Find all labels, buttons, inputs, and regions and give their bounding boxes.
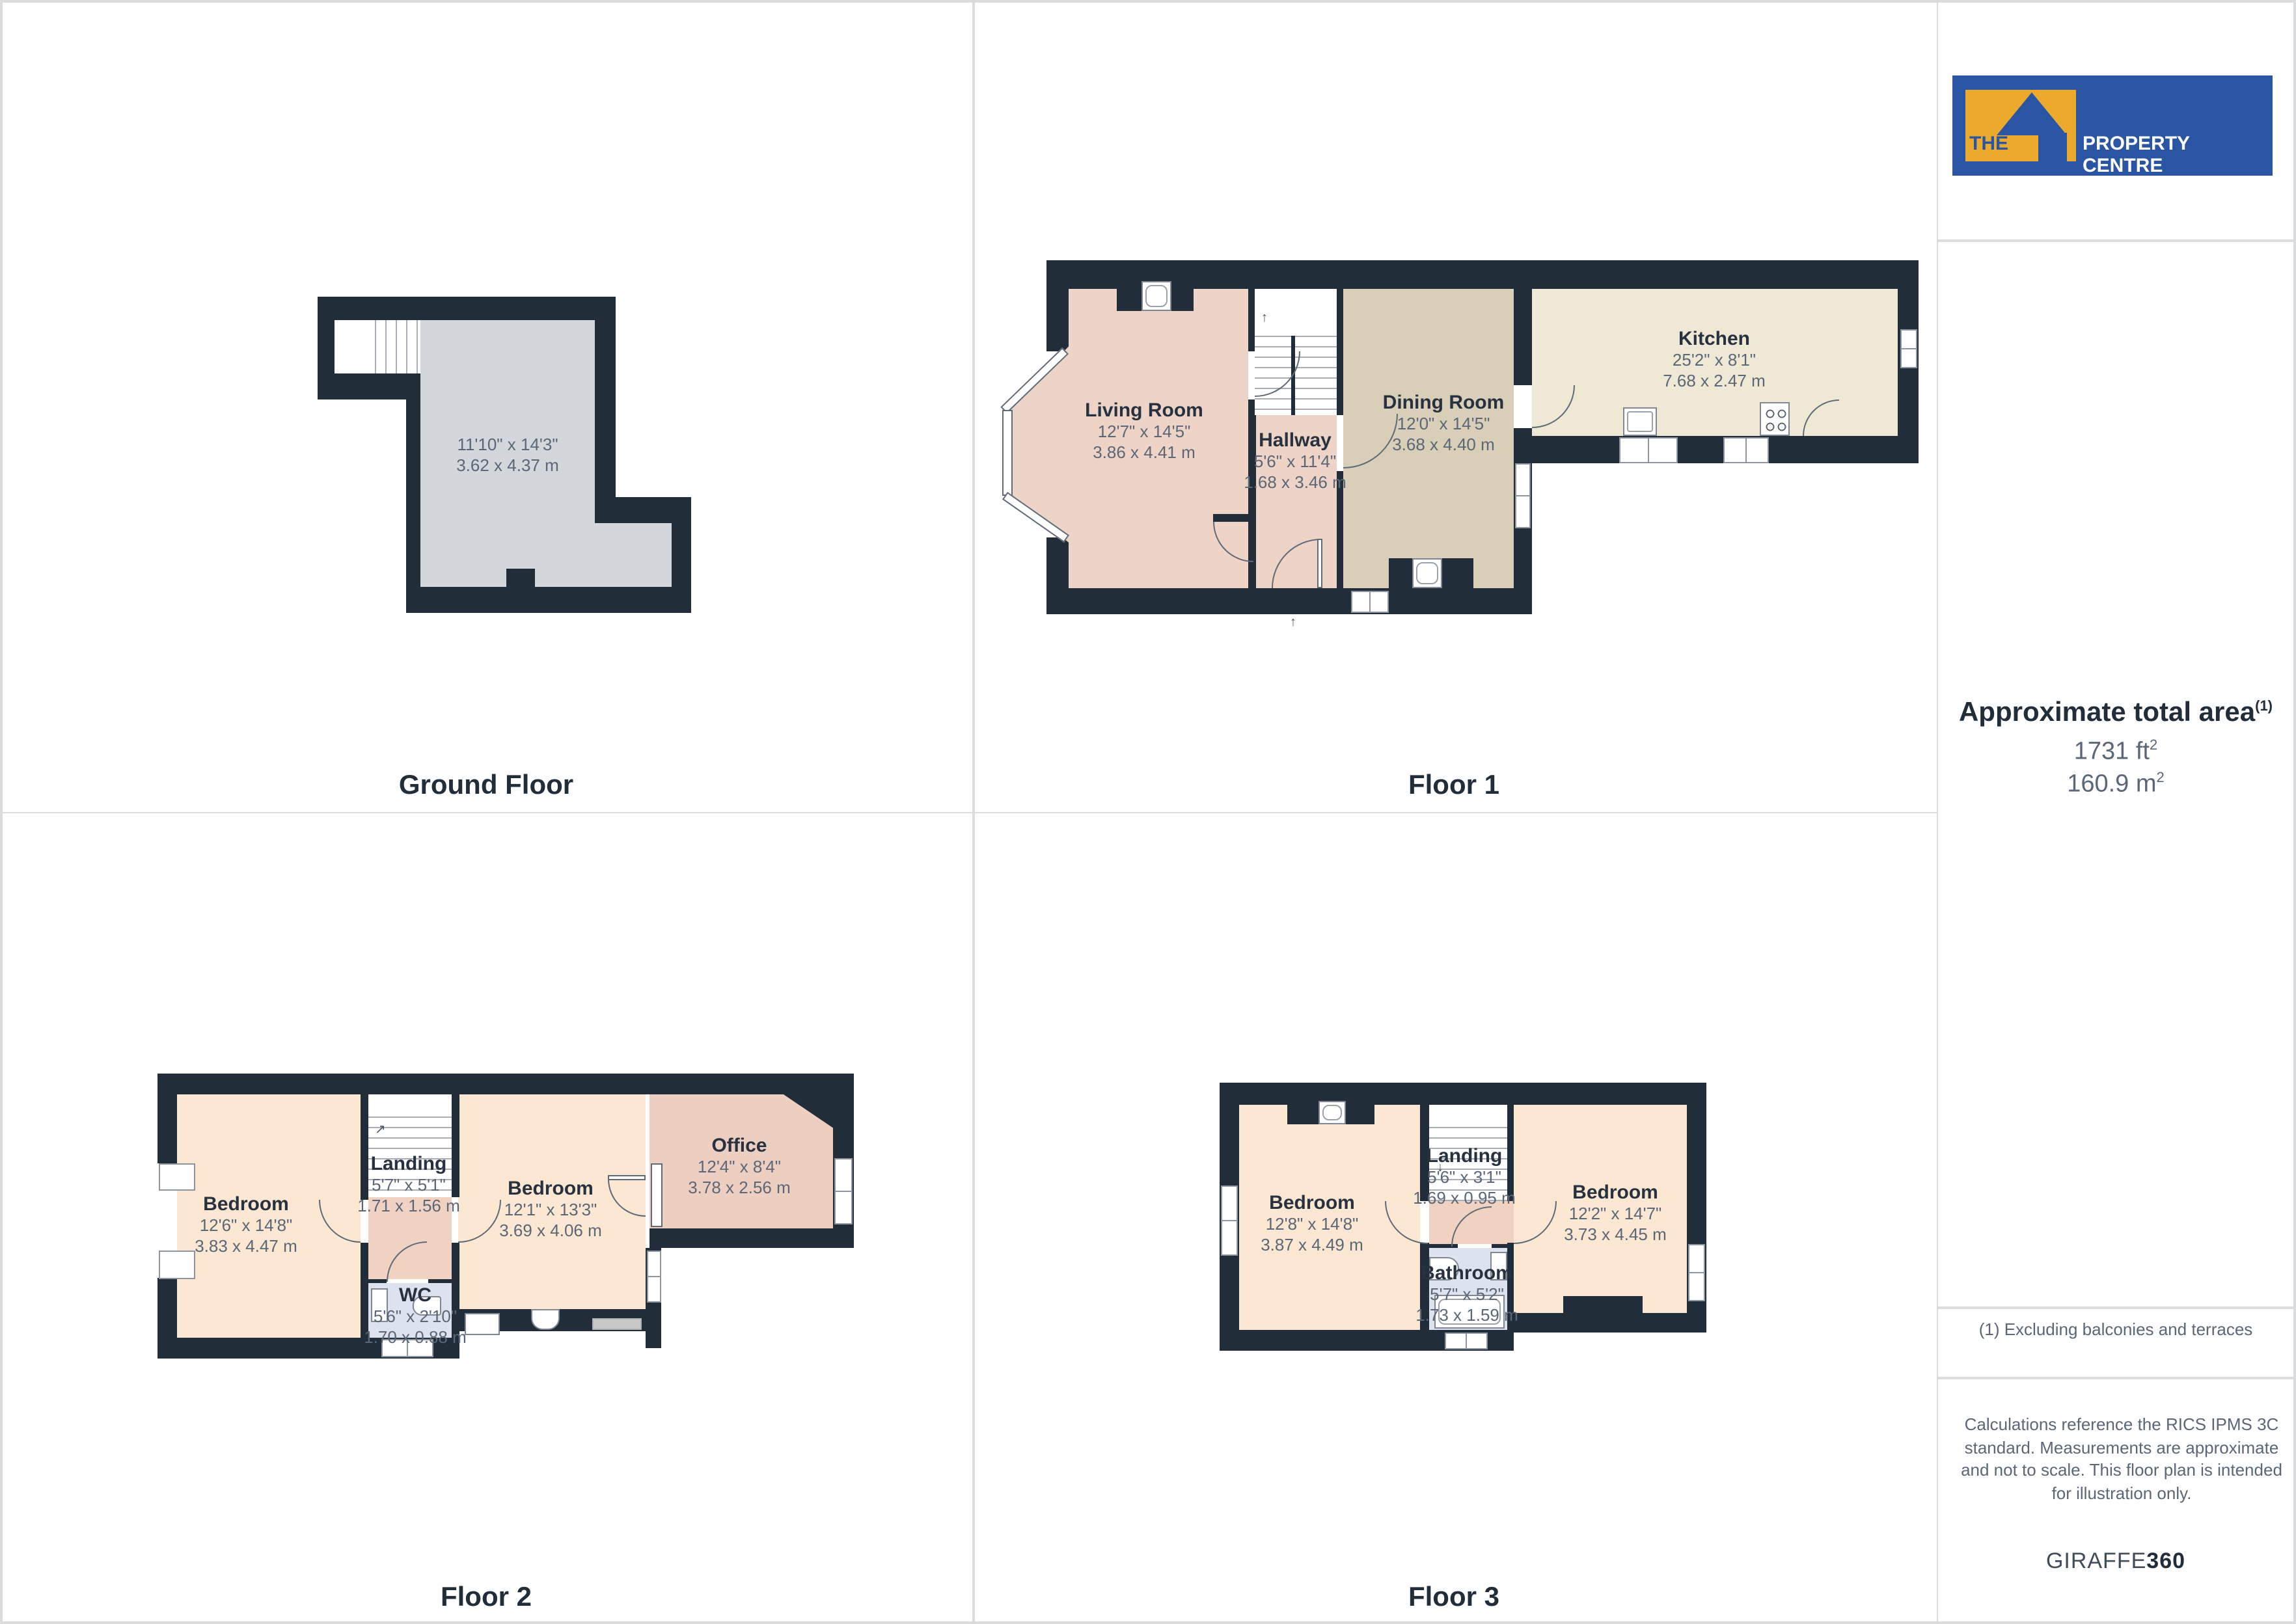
window (1900, 329, 1917, 368)
room-dims-ft: 12'6" x 14'8" (195, 1215, 297, 1236)
room-dims-m: 3.62 x 4.37 m (456, 455, 559, 476)
room-name: Bathroom (1415, 1262, 1518, 1284)
total-area-sqft: 1731 ft2 (1938, 738, 2293, 767)
sidebar-divider-top (1938, 239, 2293, 241)
window (1351, 591, 1389, 613)
room-dims-ft: 11'10" x 14'3" (456, 435, 559, 455)
room-dims-m: 1.68 x 3.46 m (1244, 472, 1346, 493)
wall (368, 1279, 387, 1283)
floor-title-3: Floor 3 (972, 1582, 1935, 1614)
room-dims-m: 1.71 x 1.56 m (357, 1196, 460, 1217)
room-dims-ft: 5'6" x 3'1" (1413, 1167, 1516, 1188)
grid-horizontal-divider (0, 811, 1937, 813)
entrance-arrow: ↑ (1290, 617, 1296, 630)
room-dims-m: 3.86 x 4.41 m (1085, 442, 1203, 463)
logo-the-text: THE (1969, 133, 2008, 155)
window (1723, 437, 1769, 463)
room-dims-ft: 12'7" x 14'5" (1085, 422, 1203, 442)
window (1445, 1333, 1488, 1349)
wall (318, 297, 616, 321)
floor-title-1: Floor 1 (972, 770, 1935, 802)
room-label-bedroom: Bedroom 12'6" x 14'8" 3.83 x 4.47 m (195, 1193, 297, 1257)
room-dims-ft: 5'7" x 5'2" (1415, 1284, 1518, 1305)
room-dims-ft: 12'8" x 14'8" (1261, 1214, 1363, 1235)
room-dims-m: 1.73 x 1.59 m (1415, 1305, 1518, 1326)
wall (1510, 1313, 1706, 1333)
room-name: Living Room (1085, 399, 1203, 422)
floor-title-2: Floor 2 (0, 1582, 972, 1614)
approximate-total-area-title: Approximate total area(1) (1938, 697, 2293, 729)
wall (157, 1074, 177, 1163)
wall (406, 587, 691, 613)
room-name: Kitchen (1663, 328, 1766, 350)
area-sqft-value: 1731 ft (2074, 738, 2150, 766)
wall (1220, 1083, 1706, 1105)
window (647, 1251, 661, 1303)
stair-direction-arrow: ↑ (1261, 312, 1268, 325)
room-name: Bedroom (499, 1178, 602, 1200)
wall-door-notch (506, 569, 535, 587)
room-name: Bedroom (195, 1193, 297, 1215)
room-label-bathroom: Bathroom 5'7" x 5'2" 1.73 x 1.59 m (1415, 1262, 1518, 1326)
wall (318, 297, 336, 399)
room-name: WC (364, 1284, 467, 1306)
room-dims-m: 3.73 x 4.45 m (1564, 1225, 1667, 1245)
room-label-living: Living Room 12'7" x 14'5" 3.86 x 4.41 m (1085, 399, 1203, 463)
sink-basin (1627, 411, 1653, 432)
room-name: Office (688, 1135, 791, 1157)
room-dims-m: 1.69 x 0.95 m (1413, 1188, 1516, 1209)
room-name: Landing (1413, 1145, 1516, 1167)
bay-window (1002, 410, 1013, 496)
room-fill-basement (595, 523, 672, 587)
room-label-wc: WC 5'6" x 2'10" 1.70 x 0.88 m (364, 1284, 467, 1348)
room-dims-m: 7.68 x 2.47 m (1663, 371, 1766, 392)
area-title-text: Approximate total area (1959, 697, 2255, 727)
area-sqm-sup: 2 (2157, 770, 2165, 786)
disclaimer-text: Calculations reference the RICS IPMS 3C … (1959, 1413, 2284, 1504)
window (1688, 1244, 1705, 1301)
room-label-landing: Landing 5'7" x 5'1" 1.71 x 1.56 m (357, 1153, 460, 1217)
room-label-bedroom: Bedroom 12'2" x 14'7" 3.73 x 4.45 m (1564, 1182, 1667, 1245)
window (1619, 437, 1678, 463)
hearth (592, 1318, 642, 1330)
area-sqm-value: 160.9 m (2067, 771, 2156, 798)
sidebar-divider-footnote-bottom (1938, 1377, 2293, 1379)
room-dims-ft: 12'2" x 14'7" (1564, 1204, 1667, 1225)
fireplace-hearth (1416, 562, 1438, 584)
window (1515, 463, 1531, 528)
wall (1046, 588, 1532, 614)
room-dims-ft: 5'6" x 2'10" (364, 1306, 467, 1327)
fireplace-icon (1412, 558, 1442, 588)
room-name: Dining Room (1383, 392, 1505, 414)
chimney-breast (1442, 558, 1473, 588)
room-label-kitchen: Kitchen 25'2" x 8'1" 7.68 x 2.47 m (1663, 328, 1766, 392)
room-dims-m: 3.69 x 4.06 m (499, 1221, 602, 1241)
wall (1046, 260, 1069, 351)
room-label-ground: 11'10" x 14'3" 3.62 x 4.37 m (456, 435, 559, 476)
chimney-breast (1563, 1296, 1643, 1313)
stair-treads (375, 320, 420, 373)
fireplace-icon (1141, 281, 1171, 311)
room-dims-m: 3.78 x 2.56 m (688, 1178, 791, 1198)
room-label-landing: Landing 5'6" x 3'1" 1.69 x 0.95 m (1413, 1145, 1516, 1209)
chimney-breast (1171, 289, 1194, 311)
room-label-hallway: Hallway 5'6" x 11'4" 1.68 x 3.46 m (1244, 429, 1346, 493)
chimney-breast (1117, 289, 1141, 311)
wall (595, 297, 616, 497)
room-dims-m: 3.83 x 4.47 m (195, 1236, 297, 1257)
room-name: Bedroom (1261, 1192, 1363, 1214)
area-sqft-sup: 2 (2150, 738, 2157, 753)
room-dims-ft: 12'1" x 13'3" (499, 1200, 602, 1221)
area-title-sup: (1) (2255, 699, 2273, 714)
window (834, 1158, 853, 1225)
window (159, 1251, 195, 1279)
logo-property-centre-text: PROPERTY CENTRE (2083, 133, 2273, 177)
floorplan-page: 11'10" x 14'3" 3.62 x 4.37 m Ground Floo… (0, 0, 2296, 1624)
wall (428, 1279, 453, 1283)
room-dims-m: 3.87 x 4.49 m (1261, 1235, 1363, 1256)
property-centre-logo: THE PROPERTY CENTRE (1952, 75, 2273, 176)
giraffe360-brand: GIRAFFE360 (1938, 1549, 2293, 1575)
wall-opening (159, 1191, 177, 1251)
window (159, 1163, 195, 1191)
room-dims-m: 3.68 x 4.40 m (1383, 435, 1505, 455)
room-dims-ft: 5'7" x 5'1" (357, 1175, 460, 1196)
room-name: Landing (357, 1153, 460, 1175)
sidebar-divider-footnote-top (1938, 1306, 2293, 1308)
wall (1046, 260, 1919, 289)
chimney-breast (1389, 558, 1412, 588)
wall (1514, 289, 1532, 385)
room-label-office: Office 12'4" x 8'4" 3.78 x 2.56 m (688, 1135, 791, 1198)
room-label-dining: Dining Room 12'0" x 14'5" 3.68 x 4.40 m (1383, 392, 1505, 455)
wall (672, 497, 691, 613)
brand-giraffe: GIRAFFE (2046, 1549, 2146, 1573)
room-dims-ft: 25'2" x 8'1" (1663, 350, 1766, 371)
wall (1213, 514, 1255, 522)
room-label-bedroom: Bedroom 12'8" x 14'8" 3.87 x 4.49 m (1261, 1192, 1363, 1256)
footnote: (1) Excluding balconies and terraces (1938, 1319, 2293, 1339)
window (1221, 1185, 1238, 1256)
wall (335, 373, 426, 399)
fireplace-hearth (1322, 1105, 1342, 1120)
sink-icon (1623, 407, 1657, 436)
floor-title-ground: Ground Floor (0, 770, 972, 802)
room-name: Hallway (1244, 429, 1346, 452)
front-door-leaf (1317, 539, 1322, 588)
room-dims-ft: 5'6" x 11'4" (1244, 452, 1346, 472)
fireplace-hearth (1145, 285, 1168, 307)
wall (1337, 289, 1343, 415)
logo-house-wall-icon (2038, 133, 2067, 161)
hob-icon (1760, 402, 1790, 436)
room-name: Bedroom (1564, 1182, 1667, 1204)
room-dims-ft: 12'0" x 14'5" (1383, 414, 1505, 435)
room-label-bedroom: Bedroom 12'1" x 13'3" 3.69 x 4.06 m (499, 1178, 602, 1241)
fireplace-icon (531, 1309, 560, 1330)
fireplace-icon (465, 1313, 500, 1335)
fireplace-icon (1319, 1101, 1346, 1124)
room-dims-m: 1.70 x 0.88 m (364, 1327, 467, 1348)
wall (1046, 537, 1069, 588)
brand-360: 360 (2146, 1549, 2185, 1573)
room-dims-ft: 12'4" x 8'4" (688, 1157, 791, 1178)
wall (1492, 1244, 1507, 1248)
door-leaf (651, 1163, 663, 1227)
total-area-sqm: 160.9 m2 (1938, 770, 2293, 800)
stair-direction-arrow: ↗ (375, 1124, 386, 1137)
wall (1514, 428, 1532, 463)
